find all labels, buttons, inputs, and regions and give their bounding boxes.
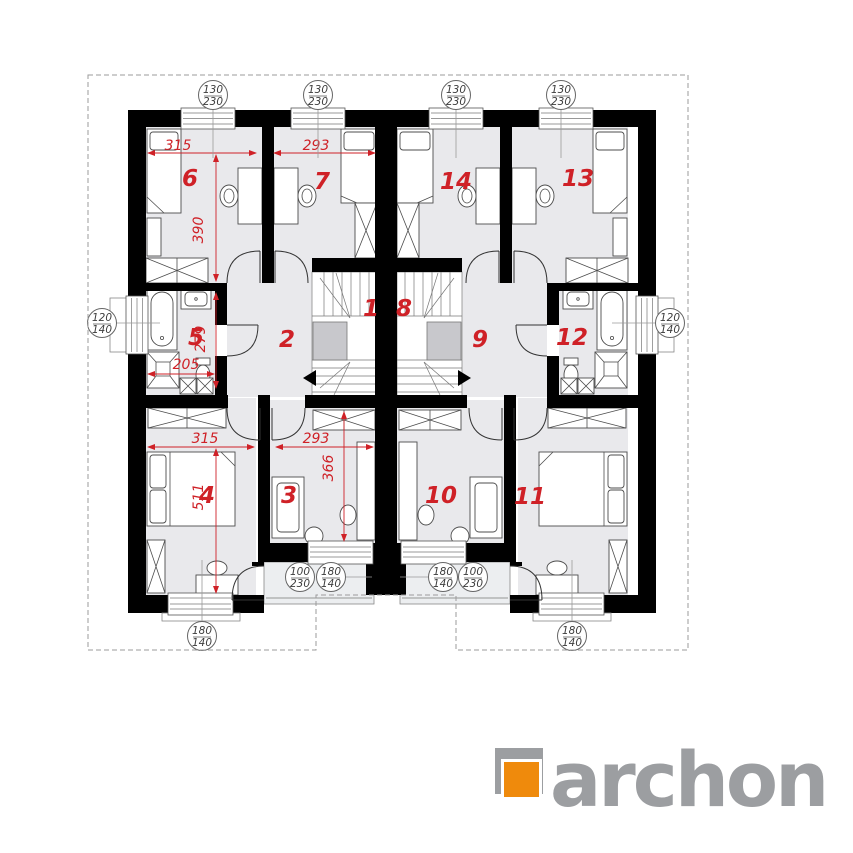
- wall-balcony-left: [264, 543, 310, 562]
- callout-balcony-window-right: 180 140: [429, 563, 458, 592]
- bed-room11: [539, 452, 627, 526]
- callout-window-bath5: 120 140: [88, 309, 117, 338]
- svg-text:140: 140: [433, 578, 453, 590]
- wall-mid-band: [312, 258, 462, 272]
- desk-room3: [357, 442, 375, 540]
- sofa-room10: [470, 477, 502, 538]
- callout-window-14: 130 230: [442, 81, 471, 110]
- wall-band-bottom-left: [128, 395, 228, 408]
- wardrobe-room13: [566, 258, 628, 283]
- dim-room6-depth: 390: [191, 217, 207, 244]
- staircase-1: [303, 272, 377, 397]
- svg-text:230: 230: [446, 96, 466, 108]
- floor-plan-page: 315 293 390 279 205 315 293 511 366 1 2 …: [0, 0, 853, 853]
- chair-room13: [536, 185, 554, 207]
- bed-room7: [341, 129, 377, 203]
- callout-balcony-door-right: 100 230: [459, 563, 488, 592]
- dim-room7-width: 293: [303, 138, 330, 154]
- window-room3-balcony: [308, 541, 373, 564]
- window-room10-balcony: [401, 541, 466, 564]
- room-label-7: 7: [314, 169, 330, 195]
- callout-balcony-window-left: 180 140: [317, 563, 346, 592]
- wall-party: [375, 110, 397, 562]
- svg-text:120: 120: [660, 312, 680, 324]
- dim-room6-width: 315: [165, 138, 192, 154]
- wall-band-bottom-right: [547, 395, 646, 408]
- wardrobe-room14: [397, 203, 419, 258]
- desk-room6: [238, 168, 262, 224]
- bathtub-bath12: [597, 288, 627, 350]
- room-label-2: 2: [279, 327, 295, 353]
- room-label-12: 12: [556, 325, 588, 351]
- wall-bath5-side: [215, 283, 227, 325]
- wardrobe-top-room4: [148, 408, 226, 428]
- svg-text:180: 180: [192, 625, 212, 637]
- chair-room4: [207, 561, 227, 575]
- wardrobe-room7: [355, 203, 377, 258]
- washbasin-bath12: [563, 289, 593, 309]
- shower-bath12: [595, 352, 627, 388]
- wardrobe-room10: [399, 410, 461, 430]
- room-label-6: 6: [182, 166, 198, 192]
- svg-text:140: 140: [660, 324, 680, 336]
- nightstand-room13: [613, 218, 627, 256]
- svg-text:180: 180: [433, 566, 453, 578]
- callout-window-room4: 180 140: [188, 622, 217, 651]
- window-room6: [181, 108, 235, 129]
- callout-balcony-door-left: 100 230: [286, 563, 315, 592]
- svg-text:140: 140: [562, 637, 582, 649]
- wall-bath12-side: [547, 283, 559, 325]
- room-label-13: 13: [562, 166, 594, 192]
- room-label-10: 10: [425, 483, 457, 509]
- desk-room13: [512, 168, 536, 224]
- room-label-8: 8: [396, 296, 412, 322]
- wall-bottom-right: [510, 595, 539, 613]
- room-label-4: 4: [198, 483, 215, 509]
- svg-text:230: 230: [551, 96, 571, 108]
- wall-bath12-top: [559, 283, 646, 291]
- dim-room3-depth: 366: [321, 455, 337, 482]
- nightstand-room6: [147, 218, 161, 256]
- svg-text:100: 100: [463, 566, 483, 578]
- callout-window-13: 130 230: [547, 81, 576, 110]
- floor-plan-drawing: 315 293 390 279 205 315 293 511 366 1 2 …: [0, 0, 853, 853]
- washbasin-bath5: [181, 289, 211, 309]
- chair-room6: [220, 185, 238, 207]
- wall-step-right: [510, 562, 522, 566]
- window-room4: [162, 593, 240, 621]
- room-label-3: 3: [281, 483, 297, 509]
- svg-text:230: 230: [463, 578, 483, 590]
- svg-text:180: 180: [321, 566, 341, 578]
- svg-text:230: 230: [203, 96, 223, 108]
- wall-balcony-right: [464, 543, 510, 562]
- bed-room14: [397, 129, 433, 203]
- svg-text:100: 100: [290, 566, 310, 578]
- wall-step-left: [252, 562, 264, 566]
- wall-div-6-7: [262, 127, 274, 283]
- wardrobe-top-room11: [548, 408, 626, 428]
- svg-text:130: 130: [446, 84, 466, 96]
- window-room13: [539, 108, 593, 129]
- callout-window-6: 130 230: [199, 81, 228, 110]
- stair-landing-8: [427, 322, 461, 360]
- wall-bath5-top: [128, 283, 215, 291]
- room-label-1: 1: [363, 296, 379, 322]
- svg-text:140: 140: [192, 637, 212, 649]
- dim-room4-width: 315: [192, 431, 219, 447]
- wall-left: [128, 110, 146, 613]
- svg-text:130: 130: [551, 84, 571, 96]
- desk-room7: [274, 168, 298, 224]
- hall-floor-2: [227, 283, 312, 397]
- dim-bath5-width: 205: [173, 357, 200, 373]
- wardrobe-room4: [147, 540, 165, 593]
- svg-text:130: 130: [308, 84, 328, 96]
- svg-text:230: 230: [290, 578, 310, 590]
- chair-room11: [547, 561, 567, 575]
- room-label-14: 14: [440, 169, 472, 195]
- wall-bottom-left: [128, 595, 168, 613]
- bathtub-bath5: [147, 288, 177, 350]
- wall-div-14-13: [500, 127, 512, 283]
- wall-right: [638, 110, 656, 613]
- svg-text:180: 180: [562, 625, 582, 637]
- callout-window-bath12: 120 140: [656, 309, 685, 338]
- logo-brand-text: archon: [550, 735, 826, 824]
- callout-window-room11: 180 140: [558, 622, 587, 651]
- svg-text:140: 140: [321, 578, 341, 590]
- desk-room10: [399, 442, 417, 540]
- stair-landing-1: [313, 322, 347, 360]
- room-label-11: 11: [514, 484, 546, 510]
- bed-room13: [593, 129, 627, 213]
- desk-room14: [476, 168, 500, 224]
- dim-room3-width: 293: [303, 431, 330, 447]
- chair-room3: [340, 505, 356, 525]
- svg-text:130: 130: [203, 84, 223, 96]
- wardrobe-room11: [609, 540, 627, 593]
- wardrobe-room6: [146, 258, 208, 283]
- callout-window-7: 130 230: [304, 81, 333, 110]
- wall-band-bottom-center: [305, 395, 467, 408]
- room-label-9: 9: [472, 327, 488, 353]
- svg-text:230: 230: [308, 96, 328, 108]
- room-label-5: 5: [188, 325, 204, 351]
- staircase-8: [397, 272, 471, 397]
- svg-text:120: 120: [92, 312, 112, 324]
- archon-logo: archon: [495, 735, 826, 824]
- svg-text:140: 140: [92, 324, 112, 336]
- logo-orange-square: [504, 762, 539, 797]
